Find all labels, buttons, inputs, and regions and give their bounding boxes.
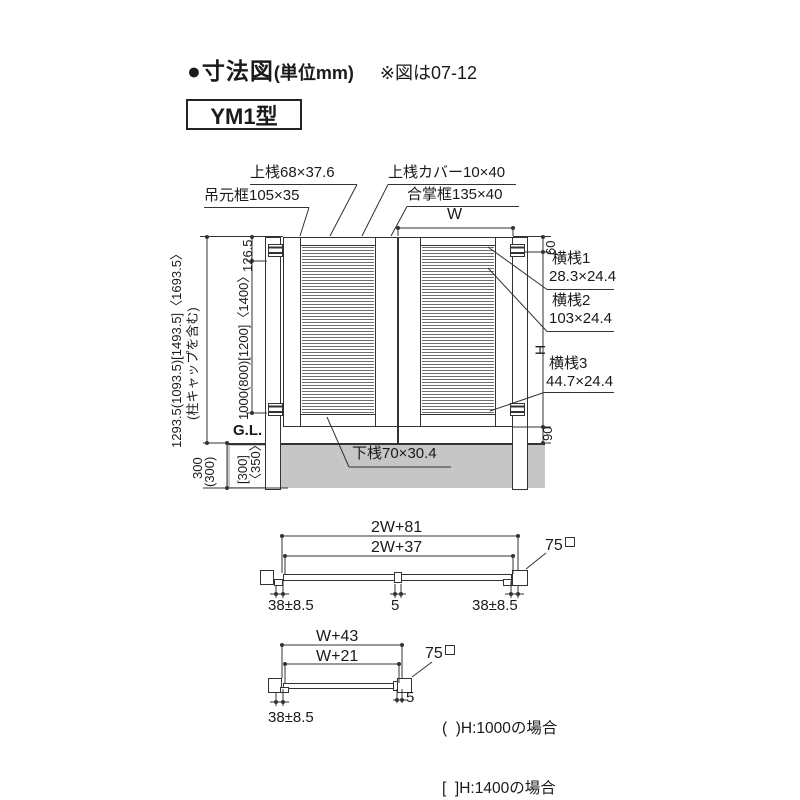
label-top-rail: 上桟68×37.6 <box>250 165 335 182</box>
plan-end-block <box>393 681 398 691</box>
plan-right-post <box>512 570 528 586</box>
label-cross-rail2-name: 横桟2 <box>552 293 590 310</box>
plan-gate-bar <box>283 683 397 689</box>
plan-left-post <box>260 570 274 585</box>
gate-leaf-left <box>283 237 398 427</box>
dim-single-outer-width: W+43 <box>316 628 358 646</box>
title-bullet-text: ●寸法図 <box>187 52 274 86</box>
hanger-stile <box>284 238 301 426</box>
label-bottom-rail: 下桟70×30.4 <box>352 446 437 463</box>
dim-leaf-width: W <box>447 206 462 224</box>
label-cross-rail3-name: 横桟3 <box>549 356 587 373</box>
bracket-legend: ( )H:1000の場合 [ ]H:1400の場合 〈 〉H:1600の場合 <box>442 679 578 800</box>
dim-single-end-gap: 5 <box>406 690 414 707</box>
plan-hinge-block <box>274 579 283 586</box>
post-size-value: 75 <box>425 645 443 662</box>
meeting-stile <box>399 238 421 426</box>
legend-row: ( )H:1000の場合 <box>442 719 578 739</box>
square-post-icon <box>565 537 575 547</box>
dim-single-post-size: 75 <box>425 645 455 663</box>
dim-single-offset-left: 38±8.5 <box>268 710 314 727</box>
dim-cap-offset: 126.5 <box>241 239 254 272</box>
dim-double-center-gap: 5 <box>391 598 399 615</box>
dim-height: H <box>533 345 547 355</box>
dim-double-inner-width: 2W+37 <box>371 539 422 557</box>
dim-hinge-span: 1000(800)[1200]〈1400〉 <box>237 270 250 420</box>
label-ground-line: G.L. <box>233 423 262 440</box>
louver-panel <box>302 247 374 413</box>
dim-bottom-clearance: 90 <box>541 427 554 441</box>
label-top-rail-cover: 上桟カバー10×40 <box>388 165 505 182</box>
hinge-icon <box>268 244 283 257</box>
label-cross-rail1-size: 28.3×24.4 <box>549 269 616 286</box>
plan-center-block <box>394 572 402 583</box>
dim-total-height: 1293.5(1093.5)[1493.5]〈1693.5〉 <box>170 247 183 448</box>
title-note-text: ※図は07-12 <box>380 59 477 85</box>
label-hanger-stile: 吊元框105×35 <box>204 188 299 205</box>
hanger-stile <box>495 238 512 426</box>
gate-leaf-right <box>398 237 513 427</box>
post-size-value: 75 <box>545 537 563 554</box>
dim-total-height-note: (柱キャップを含む) <box>186 307 199 420</box>
legend-row: [ ]H:1400の場合 <box>442 779 578 799</box>
page-title: ●寸法図 (単位mm) ※図は07-12 <box>187 52 477 86</box>
plan-hinge-block <box>280 687 289 693</box>
dim-double-post-size: 75 <box>545 537 575 555</box>
meeting-stile <box>375 238 397 426</box>
dim-embed-outer-2: (300) <box>203 457 216 487</box>
dimension-drawing-page: ●寸法図 (単位mm) ※図は07-12 YM1型 <box>0 0 800 800</box>
dim-double-offset-left: 38±8.5 <box>268 598 314 615</box>
hinge-icon <box>510 403 525 416</box>
model-name: YM1型 <box>210 99 277 131</box>
dim-double-outer-width: 2W+81 <box>371 519 422 537</box>
hinge-icon <box>510 244 525 257</box>
square-post-icon <box>445 645 455 655</box>
label-cross-rail2-size: 103×24.4 <box>549 311 612 328</box>
left-post <box>265 237 281 490</box>
dim-double-offset-right: 38±8.5 <box>472 598 518 615</box>
label-meeting-stile: 合掌框135×40 <box>407 187 502 204</box>
label-cross-rail3-size: 44.7×24.4 <box>546 374 613 391</box>
louver-panel <box>422 247 494 413</box>
hinge-icon <box>268 403 283 416</box>
title-unit-text: (単位mm) <box>274 59 354 85</box>
dim-single-inner-width: W+21 <box>316 648 358 666</box>
dim-top-offset: 60 <box>544 241 557 255</box>
right-post <box>512 237 528 490</box>
plan-hinge-block <box>503 579 512 586</box>
model-name-box: YM1型 <box>186 99 302 130</box>
dim-embed-inner-2: 〈350〉 <box>249 438 262 486</box>
